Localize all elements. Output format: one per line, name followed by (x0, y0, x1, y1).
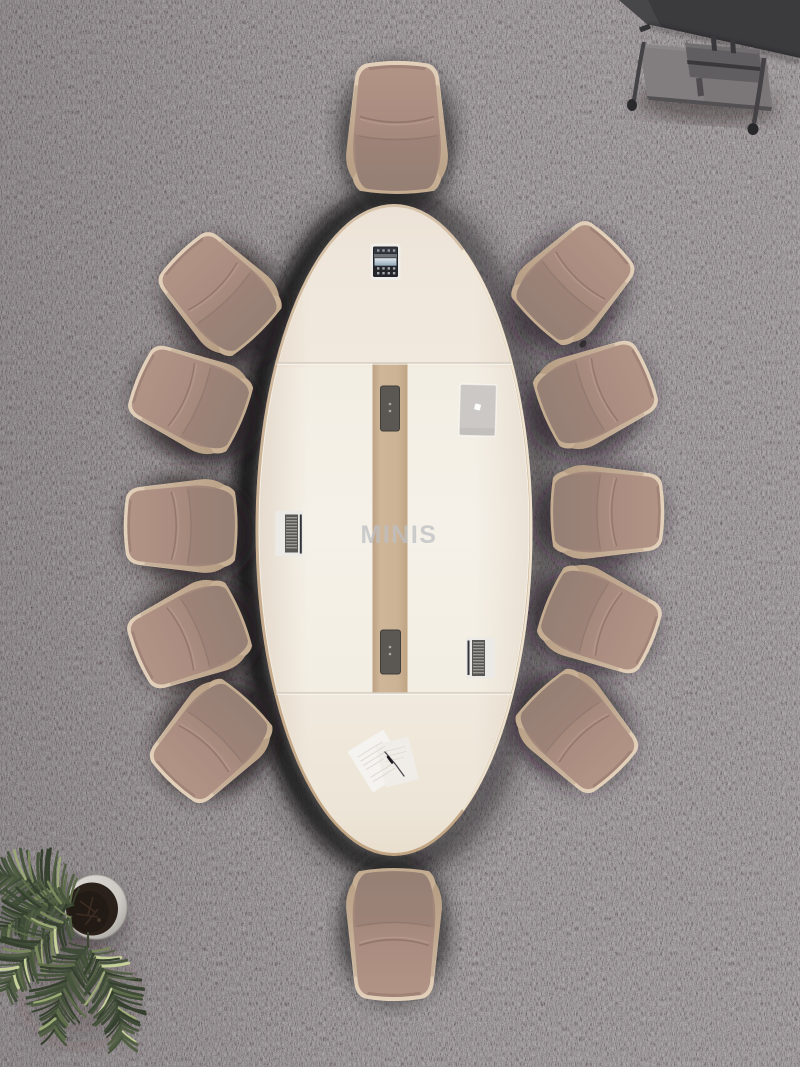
svg-text:MINIS: MINIS (361, 521, 438, 549)
